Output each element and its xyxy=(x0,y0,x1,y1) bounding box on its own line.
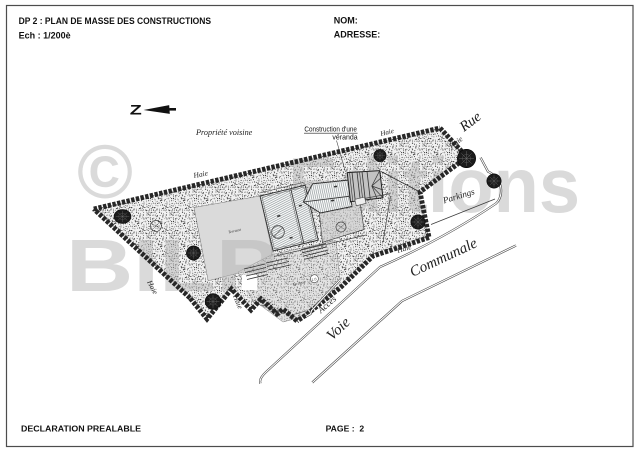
svg-text:DECLARATION PREALABLE: DECLARATION PREALABLE xyxy=(21,423,141,433)
svg-text:ADRESSE:: ADRESSE: xyxy=(334,29,381,39)
svg-text:PAGE : 2: PAGE : 2 xyxy=(326,423,365,433)
svg-text:Construction d'une: Construction d'une xyxy=(304,127,357,134)
svg-text:BILP: BILP xyxy=(66,224,278,307)
svg-text:véranda: véranda xyxy=(332,135,357,142)
svg-text:NOM:: NOM: xyxy=(334,16,358,26)
svg-text:Propriété voisine: Propriété voisine xyxy=(195,128,253,137)
svg-text:DP 2 : PLAN DE MASSE DES CONST: DP 2 : PLAN DE MASSE DES CONSTRUCTIONS xyxy=(19,16,212,26)
svg-text:Ech : 1/200è: Ech : 1/200è xyxy=(19,31,71,41)
svg-text:Z: Z xyxy=(130,103,142,118)
